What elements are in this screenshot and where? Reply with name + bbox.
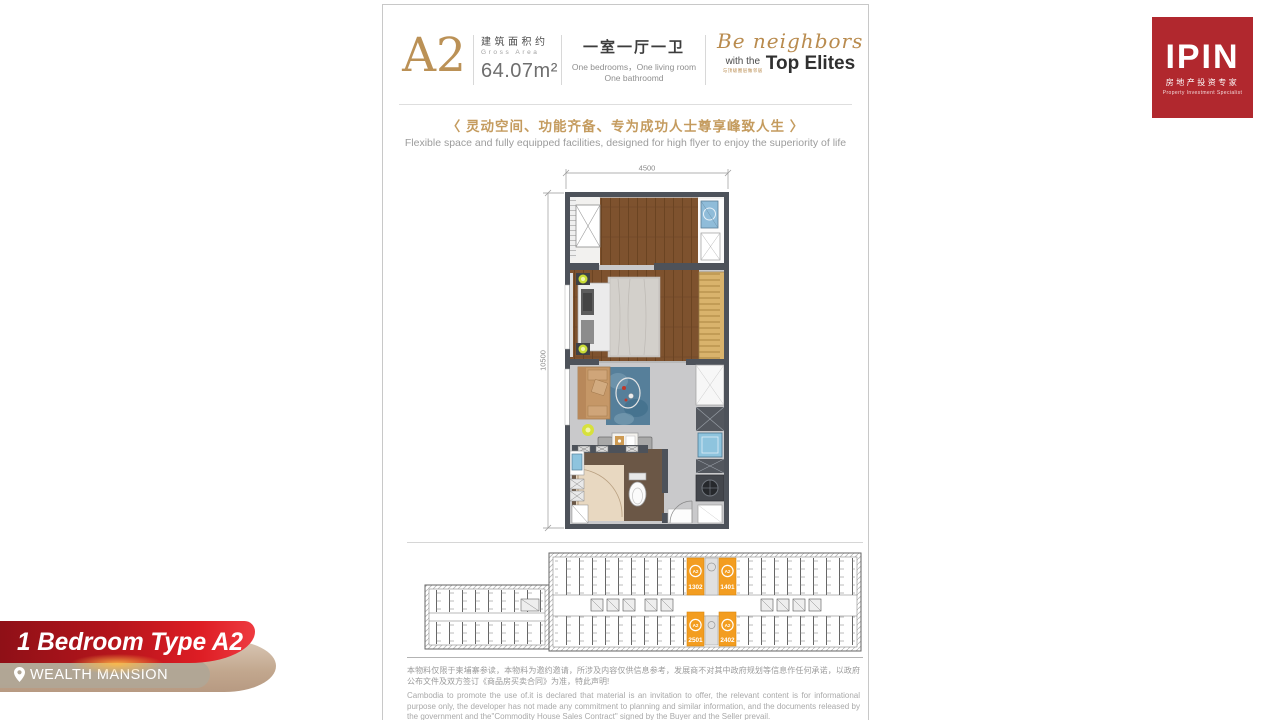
ribbon-title-band: 1 Bedroom Type A2 <box>0 621 255 663</box>
with-the-block: with the 与顶级圈层做邻居 <box>723 57 763 73</box>
ribbon-location-band: WEALTH MANSION <box>0 661 210 688</box>
disclaimer-zh: 本物料仅限于柬埔寨参读，本物料为邀约邀请，所涉及内容仅供信息参考，发展商不对其中… <box>407 665 860 687</box>
area-rug <box>606 367 650 425</box>
header-divider <box>561 35 562 85</box>
unit-mix-zh: 一室一厅一卫 <box>571 36 697 57</box>
disclaimer-en: Cambodia to promote the use of.it is dec… <box>407 691 860 720</box>
ipin-logo: IPIN 房地产投资专家 Property Investment Special… <box>1152 17 1253 118</box>
key-plan: A2 1302 A2 1401 A2 2501 <box>423 549 865 651</box>
plan-body <box>565 193 727 527</box>
terrace-wood-floor <box>600 197 698 265</box>
unit-highlight-2402: A2 2402 <box>719 612 736 646</box>
gross-area-value: 64.07m² <box>481 60 553 83</box>
top-elites-label: Top Elites <box>766 54 855 73</box>
title-ribbon: WEALTH MANSION 1 Bedroom Type A2 <box>0 616 320 716</box>
svg-text:A2: A2 <box>725 623 731 628</box>
keyplan-left-wing <box>425 585 549 649</box>
dimension-top-label: 4500 <box>639 164 656 173</box>
unit-highlight-1401: A2 1401 <box>719 558 736 595</box>
unit-type-code: A2 <box>399 23 469 89</box>
svg-text:2501: 2501 <box>688 637 703 644</box>
header-divider <box>705 35 706 85</box>
sofa <box>578 367 610 419</box>
unit-mix-block: 一室一厅一卫 One bedrooms，One living room One … <box>571 36 697 84</box>
unit-highlight-2501: A2 2501 <box>687 612 704 646</box>
ribbon-location-label: WEALTH MANSION <box>30 667 168 683</box>
svg-text:A2: A2 <box>725 569 731 574</box>
svg-text:A2: A2 <box>693 623 699 628</box>
tagline-en: Flexible space and fully equipped facili… <box>383 137 868 149</box>
floorplan-card: A2 建筑面积约 Gross Area 64.07m² 一室一厅一卫 One b… <box>382 4 869 720</box>
svg-text:A2: A2 <box>693 569 699 574</box>
svg-text:2402: 2402 <box>720 637 735 644</box>
keyplan-right-wing <box>549 553 861 651</box>
key-plan-svg: A2 1302 A2 1401 A2 2501 <box>423 549 865 653</box>
floor-plan-svg: 4500 10500 <box>538 163 734 533</box>
keyplan-rule <box>407 542 863 543</box>
tagline-zh: 〈 灵动空间、功能齐备、专为成功人士尊享峰致人生 〉 <box>383 115 868 135</box>
svg-text:1302: 1302 <box>688 584 703 591</box>
gross-area-block: 建筑面积约 Gross Area 64.07m² <box>481 33 553 83</box>
unit-highlight-1302: A2 1302 <box>687 558 704 595</box>
svg-text:1401: 1401 <box>720 584 735 591</box>
toilet <box>629 473 646 506</box>
gross-area-label-en: Gross Area <box>481 49 553 56</box>
washing-machine <box>701 201 718 228</box>
dimension-left-label: 10500 <box>539 350 548 371</box>
entry-mat <box>668 509 692 523</box>
floor-lamp <box>582 424 594 436</box>
gross-area-label-zh: 建筑面积约 <box>481 33 553 48</box>
disclaimer-rule <box>407 657 863 658</box>
elites-script-line: Be neighbors <box>717 29 861 53</box>
ipin-logo-tagline-zh: 房地产投资专家 <box>1166 77 1240 88</box>
header-divider <box>473 35 474 85</box>
floor-plan: 4500 10500 <box>538 163 734 533</box>
bed <box>578 277 660 357</box>
ribbon-title-label: 1 Bedroom Type A2 <box>17 628 243 657</box>
header-rule <box>399 104 852 105</box>
brochure-page: A2 建筑面积约 Gross Area 64.07m² 一室一厅一卫 One b… <box>0 0 1280 720</box>
bathroom-sink <box>570 451 584 475</box>
location-pin-icon <box>14 667 25 682</box>
kitchen <box>696 365 724 523</box>
ipin-logo-tagline-en: Property Investment Specialist <box>1163 90 1243 96</box>
storage-cabinet <box>701 233 720 260</box>
wardrobe <box>699 272 725 361</box>
ipin-logo-name: IPIN <box>1165 40 1239 74</box>
balcony-ac-unit <box>576 205 600 247</box>
unit-mix-en: One bedrooms，One living room One bathroo… <box>571 62 697 84</box>
elites-slogan-block: Be neighbors with the 与顶级圈层做邻居 Top Elite… <box>717 29 861 73</box>
kitchen-stove <box>696 475 724 501</box>
